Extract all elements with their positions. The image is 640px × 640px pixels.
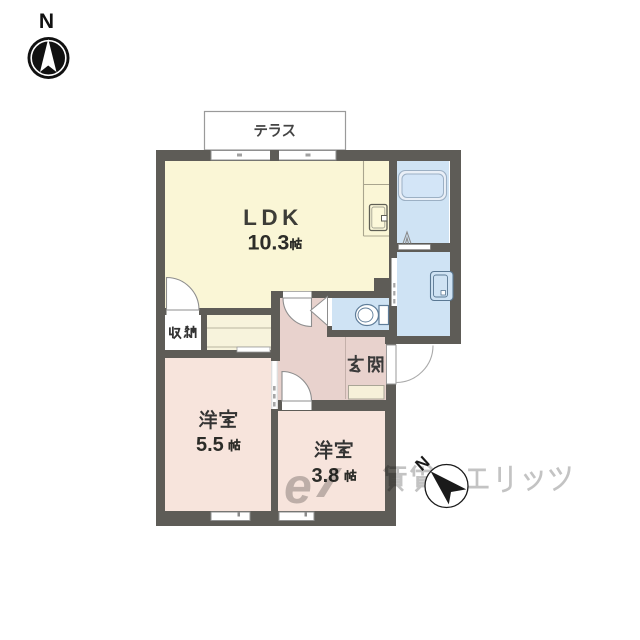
svg-text:10.3: 10.3 <box>248 231 290 255</box>
svg-text:e: e <box>284 458 312 514</box>
svg-text:N: N <box>39 10 54 33</box>
svg-text:LDK: LDK <box>243 205 303 230</box>
svg-text:5.5: 5.5 <box>196 434 224 456</box>
